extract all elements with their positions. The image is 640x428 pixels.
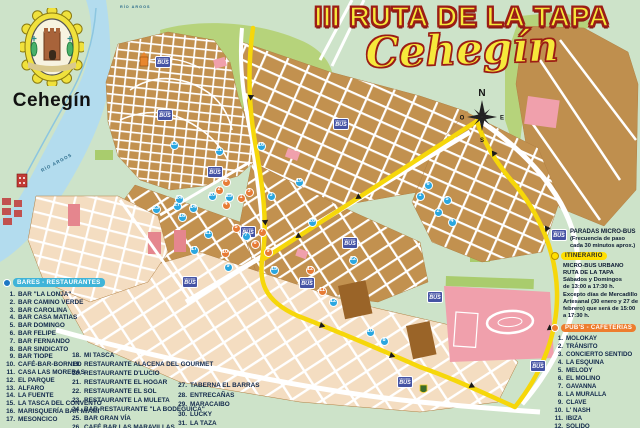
item-number: 10. <box>554 407 563 414</box>
pub-stop-marker: 6 <box>251 240 260 249</box>
bar-stop-marker: 2 <box>434 208 443 217</box>
bares-section: BARES - RESTAURANTES <box>3 278 105 287</box>
pub-item: 12.SOLIDO <box>554 423 639 428</box>
pub-item: 6.EL MOLINO <box>554 375 639 383</box>
bar-stop-marker: 18 <box>178 213 187 222</box>
item-name: CLAVE <box>566 399 587 406</box>
micro-bus-sign-icon: MICRO BUS <box>551 229 567 241</box>
pub-item: 9.CLAVE <box>554 399 639 407</box>
item-name: CONCIERTO SENTIDO <box>566 351 632 358</box>
paradas-note: (Frecuencia de paso cada 30 minutos apro… <box>570 236 639 249</box>
bar-stop-marker: 13 <box>170 141 179 150</box>
bar-stop-marker: 4 <box>448 218 457 227</box>
schedule-line: MICRO-BUS URBANO <box>563 263 639 270</box>
item-number: 3. <box>554 351 563 358</box>
item-number: 5. <box>554 367 563 374</box>
pub-stop-marker: 11 <box>318 287 327 296</box>
town-emblem: Cehegín <box>2 8 102 112</box>
item-number: 9. <box>554 399 563 406</box>
pub-item: 2.TRÁNSITO <box>554 343 639 351</box>
bar-stop-marker: 7 <box>242 232 251 241</box>
bar-stop-marker: 11 <box>204 230 213 239</box>
item-number: 8. <box>554 391 563 398</box>
pub-item: 5.MELODY <box>554 367 639 375</box>
pub-item: 11.IBIZA <box>554 415 639 423</box>
town-name-label: Cehegín <box>2 90 102 112</box>
schedule-note: Excepto días de Mercadillo Artesanal (30… <box>563 292 639 319</box>
itinerario-label: ITINERARIO <box>561 252 607 260</box>
bus-schedule: MICRO-BUS URBANO RUTA DE LA TAPA Sábados… <box>563 263 639 319</box>
legend-panel: MICRO BUS PARADAS MICRO-BUS (Frecuencia … <box>551 229 639 428</box>
item-name: LA ESQUINA <box>566 359 604 366</box>
item-name: IBIZA <box>566 415 582 422</box>
item-name: SOLIDO <box>566 423 590 428</box>
pub-item: 8.LA MURALLA <box>554 391 639 399</box>
item-name: MOLOKAY <box>566 335 597 342</box>
pub-item: 1.MOLOKAY <box>554 335 639 343</box>
micro-bus-stop-sign: MICROBUS <box>530 360 546 372</box>
pub-stop-marker: 3 <box>245 188 254 197</box>
bares-section-header: BARES - RESTAURANTES <box>3 278 105 287</box>
bar-stop-marker: 3 <box>267 192 276 201</box>
micro-bus-stop-sign: MICROBUS <box>333 118 349 130</box>
castle-tower-icon <box>44 28 60 60</box>
itinerario-legend: ITINERARIO <box>551 252 639 260</box>
schedule-line: RUTA DE LA TAPA <box>563 270 639 277</box>
item-number: 11. <box>554 415 563 422</box>
micro-bus-stop-sign: MICROBUS <box>427 291 443 303</box>
bar-stop-marker: 10 <box>366 328 375 337</box>
pubs-section-header: PUB'S - CAFETERIAS <box>551 324 639 332</box>
schedule-line: Sábados y Domingos <box>563 277 639 284</box>
poster-title: III RUTA DE LA TAPA Cehegín <box>286 2 638 70</box>
pub-stop-marker: 5 <box>232 224 241 233</box>
pub-stop-marker: 7 <box>258 228 267 237</box>
micro-bus-stop-sign: MICROBUS <box>299 277 315 289</box>
pub-stop-marker: 9 <box>264 248 273 257</box>
pubs-color-swatch <box>551 324 559 332</box>
item-number: 1. <box>554 335 563 342</box>
pub-stop-marker: 8 <box>222 178 231 187</box>
bar-stop-marker: 19 <box>295 178 304 187</box>
item-name: TRÁNSITO <box>566 343 598 350</box>
bares-color-swatch <box>3 279 11 287</box>
coat-of-arms <box>20 8 84 86</box>
bar-stop-marker: 8 <box>380 337 389 346</box>
route-color-swatch <box>551 252 559 260</box>
bar-stop-marker: 1 <box>416 192 425 201</box>
item-name: LA MURALLA <box>566 391 606 398</box>
micro-bus-stop-sign: MICROBUS <box>397 376 413 388</box>
bar-stop-marker: 22 <box>349 256 358 265</box>
bar-stop-marker: 9 <box>224 263 233 272</box>
item-number: 7. <box>554 383 563 390</box>
paradas-legend: MICRO BUS PARADAS MICRO-BUS (Frecuencia … <box>551 229 639 249</box>
item-name: L' NASH <box>566 407 591 414</box>
pub-stop-marker: 1 <box>237 194 246 203</box>
pub-stop-marker: 10 <box>221 249 230 258</box>
bar-stop-marker: 24 <box>175 195 184 204</box>
bar-stop-marker: 15 <box>270 266 279 275</box>
bar-stop-marker: 12 <box>329 298 338 307</box>
item-name: GAVANNA <box>566 383 596 390</box>
pub-stop-marker: 2 <box>215 186 224 195</box>
schedule-line: de 13:00 a 17:30 h. <box>563 284 639 291</box>
item-number: 4. <box>554 359 563 366</box>
paradas-title: PARADAS MICRO-BUS <box>570 229 639 235</box>
bar-stop-marker: 5 <box>443 196 452 205</box>
bar-stop-marker: 17 <box>190 246 199 255</box>
micro-bus-stop-sign: MICROBUS <box>342 237 358 249</box>
tapa-route-map-poster: RÍO ARGOS RÍO ARGOS N S E O MICROBUSMICR… <box>0 0 640 428</box>
micro-bus-stop-sign: MICROBUS <box>155 56 171 68</box>
bar-stop-marker: 23 <box>152 205 161 214</box>
item-name: EL MOLINO <box>566 375 600 382</box>
item-number: 2. <box>554 343 563 350</box>
bar-stop-marker: 26 <box>308 218 317 227</box>
pub-stop-marker: 4 <box>222 201 231 210</box>
pub-item: 3.CONCIERTO SENTIDO <box>554 351 639 359</box>
micro-bus-stop-sign: MICROBUS <box>207 166 223 178</box>
item-name: MELODY <box>566 367 592 374</box>
item-number: 12. <box>554 423 563 428</box>
micro-bus-stop-sign: MICROBUS <box>182 276 198 288</box>
pub-item: 4.LA ESQUINA <box>554 359 639 367</box>
bar-stop-marker: 16 <box>257 142 266 151</box>
bar-stop-marker: 21 <box>215 147 224 156</box>
bares-header-label: BARES - RESTAURANTES <box>13 278 105 287</box>
bar-stop-marker: 14 <box>189 204 198 213</box>
pubs-header-label: PUB'S - CAFETERIAS <box>561 324 636 332</box>
item-number: 6. <box>554 375 563 382</box>
pub-item: 7.GAVANNA <box>554 383 639 391</box>
micro-bus-stop-sign: MICROBUS <box>157 109 173 121</box>
pub-stop-marker: 12 <box>306 266 315 275</box>
bar-stop-marker: 6 <box>424 181 433 190</box>
pub-item: 10.L' NASH <box>554 407 639 415</box>
pubs-list: 1.MOLOKAY2.TRÁNSITO3.CONCIERTO SENTIDO4.… <box>554 335 639 428</box>
